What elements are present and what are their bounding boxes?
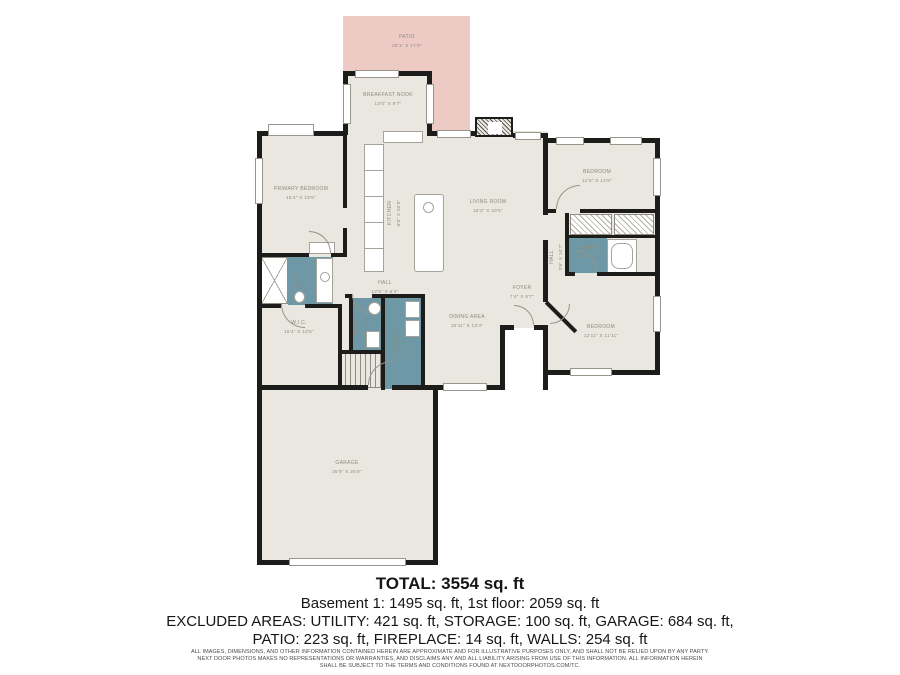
room-label-laundry: LAUNDRY5'9" X 10'9" — [392, 327, 408, 354]
floor-areas-text: Basement 1: 1495 sq. ft, 1st floor: 2059… — [0, 595, 900, 612]
room-label-hall-right: HALL3'6" X 10'7" — [548, 243, 564, 270]
bathtub-icon — [607, 239, 637, 273]
room-label-breakfast-nook: BREAKFAST NOOK13'0" X 9'7" — [363, 91, 413, 107]
excluded-areas-text-1: EXCLUDED AREAS: UTILITY: 421 sq. ft, STO… — [0, 613, 900, 630]
fireplace-icon — [475, 117, 513, 137]
disclaimer-text: ALL IMAGES, DIMENSIONS, AND OTHER INFORM… — [0, 649, 900, 670]
room-label-hall-center: HALL12'5" X 6'4" — [371, 279, 398, 295]
washer — [405, 301, 420, 318]
room-label-wic: W.I.C.15'4" X 10'5" — [284, 319, 314, 335]
room-label-dining-area: DINING AREA10'11" X 13'4" — [449, 313, 485, 329]
sink-icon — [320, 272, 330, 282]
room-label-kitchen: KITCHEN8'8" X 20'9" — [386, 199, 402, 226]
kitchen-counter — [364, 144, 384, 272]
room-label-primary-bath: BATH8'9" X 7'0" — [294, 269, 310, 293]
island-sink-icon — [423, 202, 434, 213]
room-label-hall-bath: BATH9'2" X 5'7" — [577, 244, 601, 260]
floor-plan-page: PATIO20'1" X 17'8" BREAKFAST NOOK13'0" X… — [0, 0, 900, 675]
room-label-garage: GARAGE25'9" X 25'9" — [332, 459, 362, 475]
room-label-patio: PATIO20'1" X 17'8" — [392, 33, 422, 49]
room-label-bedroom-top-right: BEDROOM12'8" X 14'8" — [582, 168, 612, 184]
room-label-bedroom-bottom-right: BEDROOM12'11" X 11'11" — [584, 323, 619, 339]
room-garage — [257, 388, 438, 565]
room-label-foyer: FOYER7'4" X 9'7" — [510, 284, 534, 300]
total-area-text: TOTAL: 3554 sq. ft — [0, 574, 900, 594]
bay-window — [268, 124, 314, 136]
closet-shelving — [570, 214, 612, 235]
garage-door — [289, 558, 406, 566]
entry-recess — [505, 328, 543, 390]
excluded-areas-text-2: PATIO: 223 sq. ft, FIREPLACE: 14 sq. ft,… — [0, 631, 900, 648]
room-label-small-bath: BATH3'4" X 6'2" — [352, 315, 368, 339]
room-label-living-room: LIVING ROOM18'3" X 20'5" — [470, 198, 507, 214]
nook-counter — [383, 131, 423, 143]
room-label-primary-bedroom: PRIMARY BEDROOM15'4" X 19'5" — [274, 185, 328, 201]
shower-icon — [261, 257, 288, 304]
closet-shelving — [614, 214, 654, 235]
